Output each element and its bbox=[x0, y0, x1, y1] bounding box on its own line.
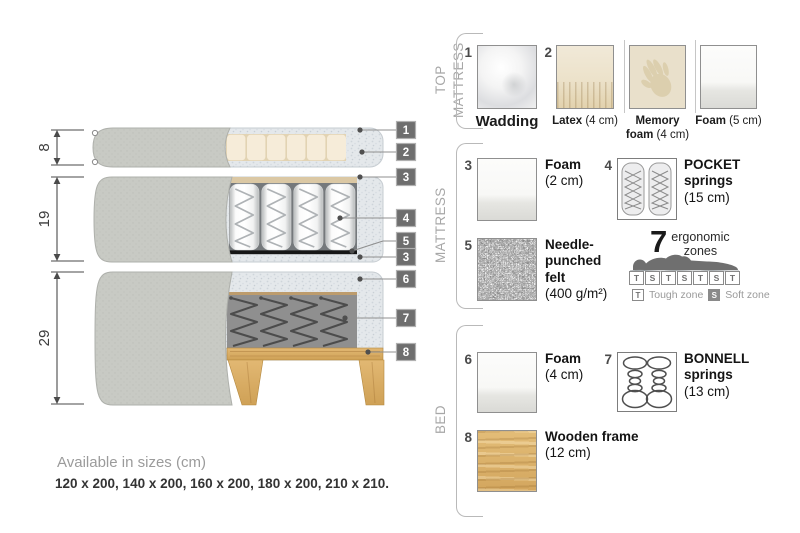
pocket-springs-icon bbox=[617, 158, 677, 220]
item-number-wood: 8 bbox=[457, 430, 472, 445]
svg-text:7: 7 bbox=[403, 313, 409, 325]
soft-zone-key: S bbox=[708, 289, 720, 301]
wooden-frame-text: Wooden frame (12 cm) bbox=[545, 429, 675, 462]
callout-chip-4: 4 bbox=[397, 210, 416, 227]
latex-label: Latex (4 cm) bbox=[543, 115, 627, 129]
measurement-label-29: 29 bbox=[36, 330, 53, 347]
memory-foam-swatch bbox=[629, 45, 686, 109]
svg-text:8: 8 bbox=[403, 347, 410, 359]
mattress-button bbox=[92, 130, 97, 135]
wooden-frame-swatch bbox=[477, 430, 537, 492]
item-number-felt: 5 bbox=[457, 238, 472, 253]
foam-5cm-label: Foam (5 cm) bbox=[692, 115, 765, 129]
measurement-bed: 29 bbox=[36, 272, 84, 404]
section-title-top-mattress: TOP MATTRESS bbox=[432, 30, 450, 130]
tough-zone-key: T bbox=[632, 289, 644, 301]
needle-felt-swatch bbox=[477, 238, 537, 301]
svg-text:3: 3 bbox=[403, 252, 409, 264]
callout-chip-1: 1 bbox=[397, 122, 416, 139]
sleeping-person-icon bbox=[629, 250, 740, 272]
svg-text:2: 2 bbox=[403, 147, 409, 159]
ergonomic-zones-row: T S T S T S T bbox=[629, 271, 740, 285]
legend-divider bbox=[624, 40, 625, 113]
svg-text:1: 1 bbox=[403, 125, 410, 137]
bed-fabric-cover bbox=[95, 272, 232, 405]
zone-box: T bbox=[693, 271, 708, 285]
zone-box: S bbox=[645, 271, 660, 285]
svg-text:4: 4 bbox=[403, 213, 410, 225]
latex-swatch bbox=[556, 45, 614, 109]
section-title-bed: BED bbox=[432, 325, 450, 515]
top-mattress-section bbox=[92, 128, 383, 167]
sizes-values: 120 x 200, 140 x 200, 160 x 200, 180 x 2… bbox=[55, 476, 389, 491]
item-number-wadding: 1 bbox=[457, 45, 472, 60]
measurement-label-8: 8 bbox=[36, 143, 53, 151]
wooden-frame bbox=[227, 348, 384, 405]
svg-text:3: 3 bbox=[403, 172, 409, 184]
sizes-title: Available in sizes (cm) bbox=[57, 454, 206, 471]
foam-2cm-swatch bbox=[477, 158, 537, 221]
pocket-springs-text: POCKET springs (15 cm) bbox=[684, 157, 764, 206]
bonnell-springs-icon bbox=[617, 352, 677, 412]
tough-zone-label: Tough zone bbox=[649, 289, 703, 301]
mattress-fabric-cover bbox=[94, 177, 232, 262]
section-title-mattress: MATTRESS bbox=[432, 143, 450, 307]
wooden-leg-left bbox=[228, 360, 263, 405]
wadding-label: Wadding bbox=[465, 113, 549, 131]
memory-foam-label: Memory foam (4 cm) bbox=[621, 115, 694, 143]
top-mattress-fabric-cover bbox=[93, 128, 230, 167]
callout-chip-2: 2 bbox=[397, 144, 416, 161]
callout-chip-6: 6 bbox=[397, 271, 416, 288]
item-number-pocket: 4 bbox=[597, 158, 612, 173]
svg-text:5: 5 bbox=[403, 236, 410, 248]
zone-box: S bbox=[709, 271, 724, 285]
bonnell-springs-text: BONNELL springs (13 cm) bbox=[684, 351, 764, 400]
wadding-swatch bbox=[477, 45, 537, 109]
callout-chip-7: 7 bbox=[397, 310, 416, 327]
needle-felt-text: Needle-punched felt (400 g/m²) bbox=[545, 237, 617, 303]
callout-chip-8: 8 bbox=[397, 344, 416, 361]
zone-legend: T Tough zone S Soft zone bbox=[632, 289, 770, 301]
item-number-foam2: 3 bbox=[457, 158, 472, 173]
item-number-latex: 2 bbox=[537, 45, 552, 60]
soft-zone-label: Soft zone bbox=[725, 289, 769, 301]
needle-felt-layer bbox=[227, 250, 357, 254]
measurement-mattress: 19 bbox=[36, 177, 84, 261]
svg-text:6: 6 bbox=[403, 274, 409, 286]
zone-box: T bbox=[629, 271, 644, 285]
handprint-icon bbox=[630, 46, 686, 109]
item-number-bonnell: 7 bbox=[597, 352, 612, 367]
mattress-button bbox=[92, 159, 97, 164]
callout-chip-3b: 3 bbox=[397, 249, 416, 266]
zone-box: S bbox=[677, 271, 692, 285]
foam-4cm-swatch bbox=[477, 352, 537, 413]
foam-5cm-swatch bbox=[700, 45, 757, 109]
bed-section bbox=[95, 272, 384, 405]
item-number-foam4: 6 bbox=[457, 352, 472, 367]
ergonomic-label-line1: ergonomic bbox=[671, 231, 729, 245]
measurement-label-19: 19 bbox=[36, 211, 53, 228]
wooden-leg-right bbox=[359, 360, 384, 405]
callout-chip-3: 3 bbox=[397, 169, 416, 186]
zone-box: T bbox=[661, 271, 676, 285]
zone-box: T bbox=[725, 271, 740, 285]
callout-chip-5: 5 bbox=[397, 233, 416, 250]
measurement-top-mattress: 8 bbox=[36, 130, 84, 165]
legend-divider bbox=[695, 40, 696, 113]
callout-chips: 1 2 3 4 5 3 6 7 8 bbox=[397, 122, 416, 361]
